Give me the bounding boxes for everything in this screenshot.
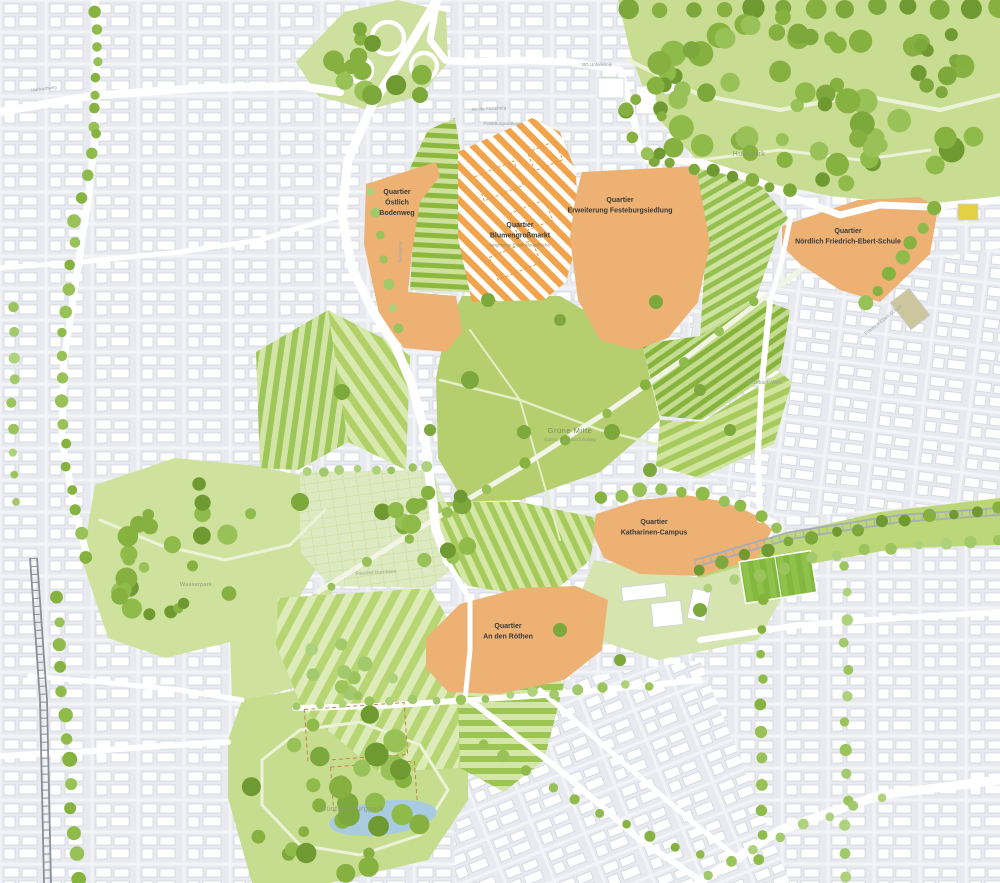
tree [842,691,852,701]
tree [686,2,701,17]
tree [919,78,934,93]
tree [287,738,301,752]
tree [521,765,531,775]
tree [393,323,403,333]
tree [739,549,750,560]
tree [122,552,135,565]
tree [704,871,713,880]
tree [756,752,767,763]
tree [647,77,665,95]
tree [440,543,456,559]
tree [694,565,705,576]
tree [385,697,394,706]
tree [549,690,559,700]
tree [832,551,842,561]
tree [964,536,976,548]
tree [192,477,206,491]
tree [652,3,667,18]
tree [771,523,782,534]
tree [848,801,858,811]
tree [93,57,102,66]
tree [67,826,81,840]
tree [76,192,87,203]
tree [795,82,816,103]
tree [776,833,786,843]
tree [630,94,641,105]
tree [143,608,155,620]
label-bodenweg: Bodenweg [398,241,403,263]
tree [507,691,515,699]
tree [676,487,687,498]
tree [648,51,672,75]
tree [130,516,147,533]
tree [805,531,818,544]
tree [926,156,945,175]
label-festeburgsiedlung: Festeburgsiedlung [483,121,521,126]
tree [86,148,97,159]
tree [757,625,766,634]
tree [62,752,77,767]
tree [303,467,312,476]
tree [334,465,344,475]
quarter-label-blumengrossmarkt-1: Blumengroßmarkt [490,233,551,240]
tree [674,81,691,98]
tree [783,183,797,197]
tree [627,132,639,144]
tree [70,846,85,861]
tree [298,826,309,837]
tree [252,830,266,844]
tree [602,409,611,418]
tree [456,695,466,705]
building-4 [598,78,624,98]
tree [362,85,382,105]
tree [758,674,767,683]
tree [383,729,406,752]
tree [887,109,911,133]
tree [88,6,100,18]
tree [553,623,567,637]
tree [217,525,237,545]
tree [482,695,490,703]
tree [876,515,888,527]
tree [885,543,897,555]
tree [408,695,417,704]
tree [714,326,724,336]
tree [696,850,705,859]
tree [339,700,347,708]
tree [852,524,864,536]
quarter-label-noerdlich-friedrich-ebert-schule-0: Quartier [834,228,862,235]
tree [936,86,948,98]
tree [63,283,76,296]
quarter-area-blumengrossmarkt [458,118,578,302]
tree [319,467,329,477]
tree [327,583,335,591]
tree [335,680,349,694]
tree [619,102,633,116]
tree [691,134,714,157]
tree [818,97,832,111]
tree [222,586,237,601]
tree [75,527,88,540]
tree [57,328,66,337]
tree [92,42,102,52]
tree [368,816,389,837]
tree [91,73,101,83]
tree [839,820,850,831]
tree [415,498,427,510]
tree [55,394,68,407]
tree [918,223,929,234]
tree [164,536,181,553]
tree [64,802,76,814]
tree [91,129,101,139]
tree [55,617,65,627]
tree [305,643,318,656]
tree [615,490,628,503]
tree [778,563,790,575]
tree [838,175,854,191]
quarter-blumengrossmarkt [458,118,578,302]
tree [412,65,432,85]
tree [527,686,537,696]
tree [59,306,72,319]
tree [364,35,381,52]
tree [748,845,758,855]
tree [57,419,68,430]
tree [479,739,488,748]
tree [293,702,301,710]
tree [572,684,583,695]
tree [442,507,453,518]
tree [697,83,716,102]
tree [387,467,395,475]
tree [363,848,374,859]
tree [715,28,736,49]
tree [798,819,809,830]
tree [9,449,17,457]
tree [878,794,887,803]
tree [704,584,713,593]
tree [899,515,911,527]
tree [336,864,355,883]
tree [938,66,957,85]
building-7 [958,204,978,220]
tree [9,353,20,364]
quarter-sublabel-blumengrossmarkt: langfristige Entwicklungsfläche [490,243,550,248]
tree [923,509,936,522]
tree [193,527,211,545]
tree [842,614,853,625]
tree [335,638,347,650]
tree [380,255,388,263]
tree [840,717,849,726]
tree [930,0,950,20]
quarter-label-an-den-roethen-1: An den Röthen [483,634,533,641]
tree [729,574,739,584]
tree [640,379,651,390]
tree [632,483,647,498]
tree [310,747,330,767]
tree [296,843,316,863]
tree [657,111,667,121]
tree [79,551,92,564]
tree [741,15,761,35]
tree [903,236,916,249]
building-1 [651,600,683,627]
tree [376,231,385,240]
tree [839,561,849,571]
tree [402,515,421,534]
tree [715,556,728,569]
quarter-label-noerdlich-friedrich-ebert-schule-1: Nördlich Friedrich-Ebert-Schule [795,239,901,246]
tree [727,171,738,182]
tree [58,708,72,722]
tree [604,424,620,440]
tree [941,538,953,550]
label-gruene-mitte: Grüne Mitte [548,426,593,435]
tree [329,776,352,799]
tree [354,465,362,473]
tree [64,260,75,271]
tree [595,809,604,818]
tree [621,680,630,689]
tree [896,250,910,264]
tree [726,856,737,867]
tree [10,471,18,479]
tree [517,425,531,439]
tree [756,650,765,659]
tree [9,327,19,337]
tree [927,201,941,215]
tree [734,500,746,512]
tree [840,744,852,756]
tree [665,158,675,168]
tree [139,562,150,573]
tree [955,55,970,70]
tree [570,794,580,804]
tree [914,39,927,52]
tree [554,314,566,326]
tree [70,237,81,248]
quarter-label-blumengrossmarkt-0: Quartier [506,222,534,229]
tree [383,279,394,290]
tree [643,463,657,477]
tree [497,750,509,762]
label-seckbach-west: Seckbach West [748,380,783,386]
tree [67,214,81,228]
label-guenthersburgpark: Günthersburgpark [321,806,384,813]
tree [306,778,320,792]
tree [756,510,768,522]
tree [195,495,211,511]
tree [178,598,189,609]
tree [357,656,372,671]
label-gruene-mitte-sub: Gärten, Sport und Erholung [544,437,596,442]
label-huthpark: Huthpark [733,151,765,158]
tree [839,638,849,648]
tree [353,22,367,36]
tree [645,682,654,691]
tree [720,73,739,92]
tree [409,463,417,471]
tree [306,719,319,732]
tree [758,830,768,840]
tree [775,9,791,25]
label-bg-unfallklinik: BG Unfallklinik [582,62,613,67]
tree [754,699,766,711]
tree [694,384,706,396]
tree [689,164,700,175]
tree [481,293,495,307]
tree [386,75,406,95]
tree [753,854,764,865]
tree [622,820,631,829]
tree [390,759,411,780]
tree [8,302,18,312]
tree [410,814,430,834]
tree [111,588,128,605]
tree [724,424,736,436]
tree [424,424,436,436]
tree [764,182,774,192]
tree [783,537,793,547]
tree [92,24,102,34]
tree [519,457,530,468]
tree [405,534,414,543]
tree [359,857,379,877]
tree [291,493,309,511]
tree [873,286,883,296]
tree [832,527,842,537]
tree [388,502,404,518]
tree [421,486,435,500]
tree [826,153,849,176]
tree [372,466,381,475]
tree [6,398,16,408]
map-canvas: HuthparkGünthersburgparkWasserparkFriedh… [0,0,1000,883]
tree [595,491,607,503]
tree [755,726,767,738]
quarter-label-an-den-roethen-0: Quartier [494,623,522,630]
quarter-label-oestlich-bodenweg-1: Östlich [385,198,409,207]
tree [841,769,851,779]
tree [649,295,663,309]
tree [61,439,71,449]
tree [777,152,793,168]
tree [825,812,834,821]
tree [353,760,370,777]
tree [61,462,71,472]
planning-map: HuthparkGünthersburgparkWasserparkFriedh… [0,0,1000,883]
tree [366,188,374,196]
tree [840,848,851,859]
tree [70,504,81,515]
quarter-label-erweiterung-festeburgsiedlung-0: Quartier [606,197,634,204]
tree [693,603,707,617]
tree [337,665,351,679]
tree [756,805,767,816]
tree [934,127,956,149]
tree [8,424,19,435]
tree [82,170,94,182]
tree [972,506,983,517]
tree [461,371,479,389]
tree [388,673,398,683]
tree [353,62,371,80]
quarter-label-oestlich-bodenweg-0: Quartier [383,189,411,196]
tree [597,682,607,692]
label-wasserpark: Wasserpark [180,582,212,588]
tree [55,686,66,697]
tree [187,560,198,571]
tree [746,173,760,187]
tree [12,498,20,506]
tree [67,485,77,495]
tree [769,24,786,41]
tree [810,142,829,161]
quarter-label-oestlich-bodenweg-2: Bodenweg [379,210,414,217]
tree [719,496,730,507]
tree [788,24,808,44]
tree [840,872,851,883]
tree [756,779,768,791]
tree [459,537,477,555]
tree [614,654,626,666]
tree [354,691,363,700]
tree [61,733,72,744]
tree [964,127,984,147]
tree [65,778,77,790]
tree [50,591,63,604]
tree [669,115,694,140]
tree [843,588,852,597]
quarter-label-katharinen-campus-0: Quartier [640,519,668,526]
tree [316,701,324,709]
tree [53,638,66,651]
tree [245,508,256,519]
tree [815,172,830,187]
tree [364,696,374,706]
tree [10,374,20,384]
tree [412,87,428,103]
quarter-label-katharinen-campus-1: Katharinen-Campus [621,530,688,537]
tree [334,384,350,400]
tree [336,72,354,90]
tree [843,665,853,675]
tree [761,544,774,557]
tree [307,668,320,681]
tree [945,28,958,41]
tree [549,783,558,792]
tree [389,304,397,312]
tree [915,540,924,549]
tree [859,544,870,555]
tree [758,594,769,605]
tree [362,557,372,567]
tree [830,36,847,53]
tree [644,831,655,842]
tree [664,138,684,158]
tree [654,148,666,160]
tree [849,30,872,53]
tree [417,553,431,567]
tree [835,88,860,113]
tree [392,804,413,825]
tree [882,267,896,281]
tree [655,483,667,495]
